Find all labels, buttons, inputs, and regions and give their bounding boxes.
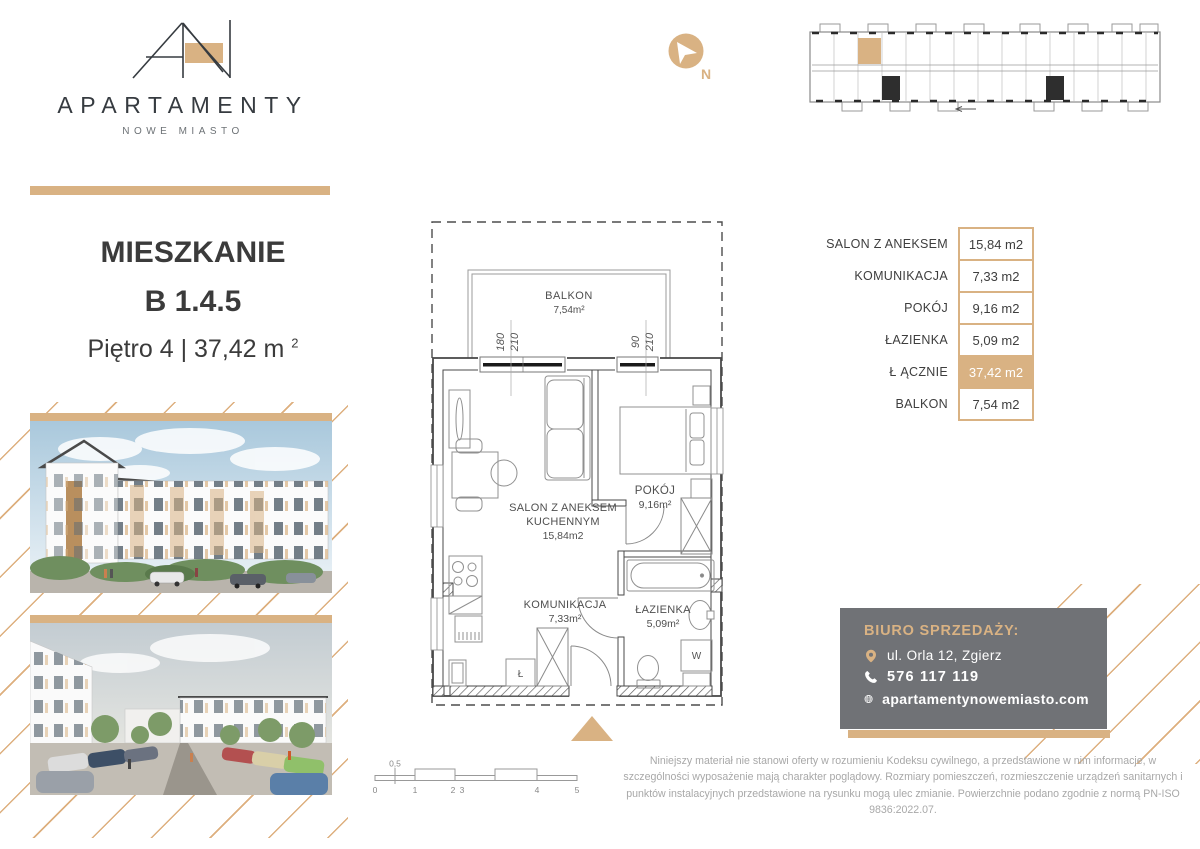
scale-4: 4 [535, 785, 540, 795]
brand-monogram [128, 14, 238, 84]
pokoj-area: 9,16m² [639, 499, 672, 511]
window1-height: 210 [509, 332, 521, 352]
balkon-area: 7,54m² [553, 305, 585, 316]
unit-number: B 1.4.5 [40, 285, 346, 319]
overview-highlighted-unit [858, 38, 881, 64]
building-photo-1 [30, 421, 332, 593]
scale-1: 1 [413, 785, 418, 795]
lazienka-area: 5,09m² [647, 618, 680, 630]
building-photo-1-render [30, 421, 332, 593]
room-area-value: 5,09 m2 [958, 323, 1034, 357]
pokoj-label: POKÓJ [635, 484, 675, 497]
room-label: POKÓJ [802, 291, 958, 325]
sales-office-title: BIURO SPRZEDAŻY: [864, 623, 1089, 639]
table-row-total: Ł ĄCZNIE 37,42 m2 [802, 355, 1034, 389]
window-dimensions: 180 210 90 210 [495, 332, 656, 352]
table-row: BALKON 7,54 m2 [802, 387, 1034, 421]
room-area-value: 15,84 m2 [958, 227, 1034, 261]
window-pokoj [615, 354, 660, 374]
entrance-marker-triangle [571, 716, 613, 741]
salon-area: 15,84m2 [543, 530, 584, 542]
fridge-label: Ł [518, 669, 524, 680]
location-pin-icon [864, 649, 878, 663]
building-photo-2 [30, 623, 332, 795]
table-row: SALON Z ANEKSEM 15,84 m2 [802, 227, 1034, 261]
salon-label-1: SALON Z ANEKSEM [509, 502, 617, 514]
gable-windows [46, 463, 118, 563]
sales-office-website: apartamentynowemiasto.com [882, 691, 1089, 707]
entrance-opening [569, 684, 619, 698]
photo2-gold-bar [30, 615, 332, 623]
overview-stair-core-left [882, 76, 900, 100]
floor-and-area: Piętro 4 | 37,42 m 2 [40, 335, 346, 364]
room-area-value: 9,16 m2 [958, 291, 1034, 325]
window1-width: 180 [495, 332, 507, 351]
total-area-value: 37,42 m2 [958, 355, 1034, 389]
komunikacja-area: 7,33m² [549, 613, 582, 625]
room-label: BALKON [802, 387, 958, 421]
legal-disclaimer: Niniejszy materiał nie stanowi oferty w … [618, 753, 1188, 819]
sales-office-address: ul. Orla 12, Zgierz [887, 648, 1002, 663]
brand-subtitle: NOWE MIASTO [30, 126, 336, 137]
scale-bar-segments [375, 768, 577, 784]
room-label: KOMUNIKACJA [802, 259, 958, 293]
area-table: SALON Z ANEKSEM 15,84 m2 KOMUNIKACJA 7,3… [802, 227, 1034, 421]
scale-5: 5 [575, 785, 580, 795]
table-row: ŁAZIENKA 5,09 m2 [802, 323, 1034, 357]
scale-05: 0,5 [389, 760, 401, 769]
globe-icon [864, 692, 873, 706]
overview-stair-core-right [1046, 76, 1064, 100]
gold-divider-bar [30, 186, 330, 195]
floor-plan: 180 210 90 210 [415, 215, 735, 750]
scale-0: 0 [373, 785, 378, 795]
room-label: SALON Z ANEKSEM [802, 227, 958, 261]
room-label: Ł ĄCZNIE [802, 355, 958, 389]
phone-row[interactable]: 576 117 119 [864, 669, 1089, 685]
window-salon [478, 354, 567, 374]
listing-title-block: MIESZKANIE B 1.4.5 Piętro 4 | 37,42 m 2 [40, 238, 346, 364]
monogram-gold-block [185, 43, 223, 63]
window2-height: 210 [644, 332, 656, 352]
table-row: POKÓJ 9,16 m2 [802, 291, 1034, 325]
website-row[interactable]: apartamentynowemiasto.com [864, 691, 1089, 707]
lazienka-label: ŁAZIENKA [635, 604, 691, 616]
table-row: KOMUNIKACJA 7,33 m2 [802, 259, 1034, 293]
overview-direction-arrow [956, 107, 976, 112]
scale-3: 3 [460, 785, 465, 795]
listing-type: MIESZKANIE [40, 238, 346, 268]
scale-2: 2 [451, 785, 456, 795]
room-area-value: 7,33 m2 [958, 259, 1034, 293]
balkon-label: BALKON [545, 290, 593, 302]
scale-bar-labels: 0 0,5 1 2 3 4 5 [373, 760, 580, 795]
photo1-gold-bar [30, 413, 332, 421]
building-photo-2-render [30, 623, 332, 795]
sales-office-phone: 576 117 119 [887, 669, 979, 685]
sales-office-box: BIURO SPRZEDAŻY: ul. Orla 12, Zgierz 576… [840, 608, 1107, 729]
brand-wordmark: APARTAMENTY [30, 92, 336, 119]
contact-gold-bar [848, 730, 1110, 738]
floor-area-text: Piętro 4 | 37,42 m [87, 335, 284, 363]
compass-north-label: N [701, 66, 711, 82]
salon-label-2: KUCHENNYM [526, 516, 600, 528]
compass: N [664, 28, 720, 84]
washing-machine-label: W [692, 651, 702, 662]
window2-width: 90 [630, 335, 642, 348]
room-label: ŁAZIENKA [802, 323, 958, 357]
room-area-value: 7,54 m2 [958, 387, 1034, 421]
komunikacja-label: KOMUNIKACJA [524, 599, 607, 611]
scale-bar: 0 0,5 1 2 3 4 5 [368, 760, 586, 804]
flyer-canvas: APARTAMENTY NOWE MIASTO MIESZKANIE B 1.4… [0, 0, 1200, 849]
area-superscript: 2 [291, 336, 298, 351]
building-overview-plan [806, 20, 1164, 115]
phone-icon [864, 670, 878, 684]
